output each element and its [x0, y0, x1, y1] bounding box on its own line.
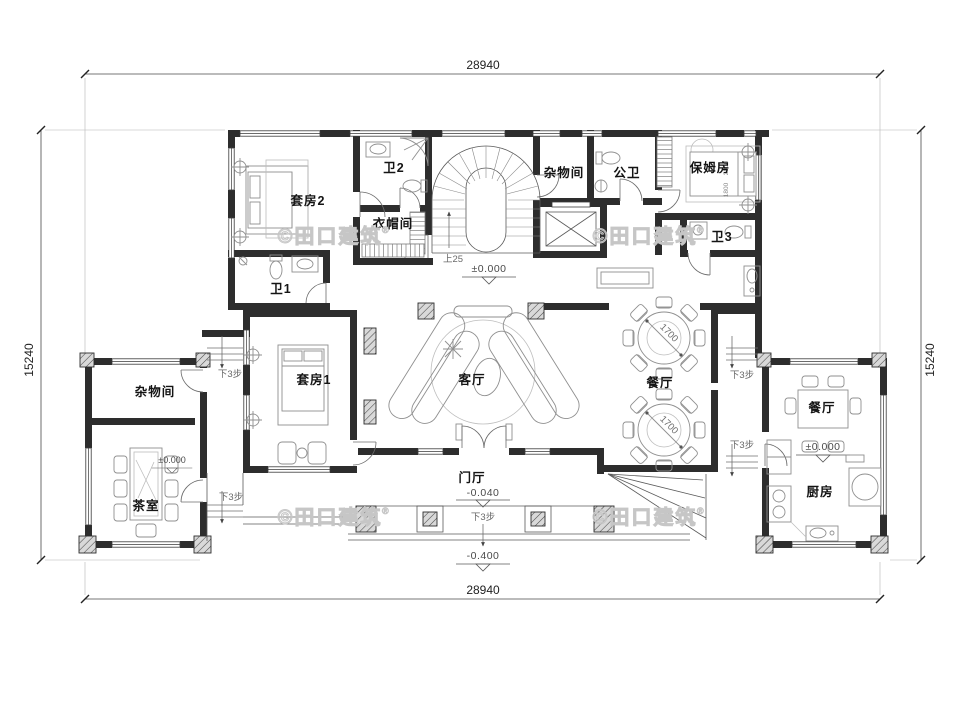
room-storage-west: 杂物间 [135, 384, 176, 399]
floor-plan-drawing: 28940 28940 15240 15240 [0, 0, 961, 722]
stair-up-label: 上25 [443, 254, 463, 265]
dim-bottom: 28940 [466, 583, 500, 597]
table-diameter-2: 1700 [657, 414, 680, 437]
level-tea: ±0.000 [158, 455, 185, 465]
steps-label-w1: 下3步 [218, 369, 242, 380]
walls [85, 130, 887, 548]
watermark-2: ©田口建筑 [593, 224, 698, 248]
level-foyer: -0.040 [467, 487, 500, 499]
table-diameter-1: 1700 [657, 322, 680, 345]
room-label-dining-east: 餐厅 [807, 400, 835, 415]
floor-plan-page: 28940 28940 15240 15240 [0, 0, 961, 722]
room-bath2: 卫2 [366, 138, 428, 192]
room-label-bath3: 卫3 [711, 230, 732, 244]
level-ground: -0.400 [467, 550, 500, 562]
watermark-1: ©田口建筑 [278, 224, 383, 248]
staircase: 上25 [432, 146, 540, 265]
room-dining-round: 1700 1700 餐厅 [623, 297, 705, 471]
watermark-2-reg: ® [697, 225, 704, 235]
watermark-3-reg: ® [382, 506, 389, 516]
room-label-tea: 茶室 [131, 498, 159, 513]
bed-width-label: 1800 [723, 182, 730, 197]
dim-right: 15240 [923, 343, 937, 377]
room-public-bath: 公卫 [595, 152, 641, 192]
level-kitchen: ±0.000 [805, 441, 840, 453]
room-nanny: 2000 1800 保姆房 [657, 137, 760, 214]
room-living: 客厅 [384, 306, 584, 435]
hall-console [597, 268, 653, 288]
room-tea: ±0.000 茶室 [114, 448, 192, 537]
room-label-living: 客厅 [457, 372, 485, 387]
room-bath1: 卫1 [239, 255, 318, 296]
steps-label-e2: 下3步 [730, 440, 754, 451]
room-label-bath1: 卫1 [270, 282, 291, 296]
room-label-suite1: 套房1 [296, 372, 332, 387]
elevator [546, 202, 596, 246]
east-corridor-steps: 下3步 下3步 [726, 336, 758, 476]
hall-level: ±0.000 [462, 263, 516, 284]
watermark-3: ©田口建筑 [278, 505, 383, 529]
room-label-storage-west: 杂物间 [135, 384, 176, 399]
watermark-4-reg: ® [697, 506, 704, 516]
room-label-kitchen: 厨房 [806, 484, 833, 499]
level-hall: ±0.000 [471, 263, 506, 275]
watermark-1-reg: ® [382, 225, 389, 235]
room-label-bath2: 卫2 [383, 161, 404, 175]
steps-label-w2: 下3步 [219, 492, 243, 503]
room-label-nanny: 保姆房 [689, 160, 731, 175]
room-label-suite2: 套房2 [290, 193, 326, 208]
room-label-dining-round: 餐厅 [645, 375, 673, 390]
dim-left: 15240 [22, 343, 36, 377]
steps-label-e1: 下3步 [730, 370, 754, 381]
dim-top: 28940 [466, 58, 500, 72]
watermark-4: ©田口建筑 [593, 505, 698, 529]
plant-icon [443, 339, 463, 359]
room-label-storage-upper: 杂物间 [544, 165, 585, 180]
room-label-public-bath: 公卫 [613, 166, 640, 180]
room-label-foyer: 门厅 [458, 470, 485, 485]
steps-label-foyer: 下3步 [471, 512, 495, 523]
room-storage-upper: 杂物间 [544, 165, 585, 180]
